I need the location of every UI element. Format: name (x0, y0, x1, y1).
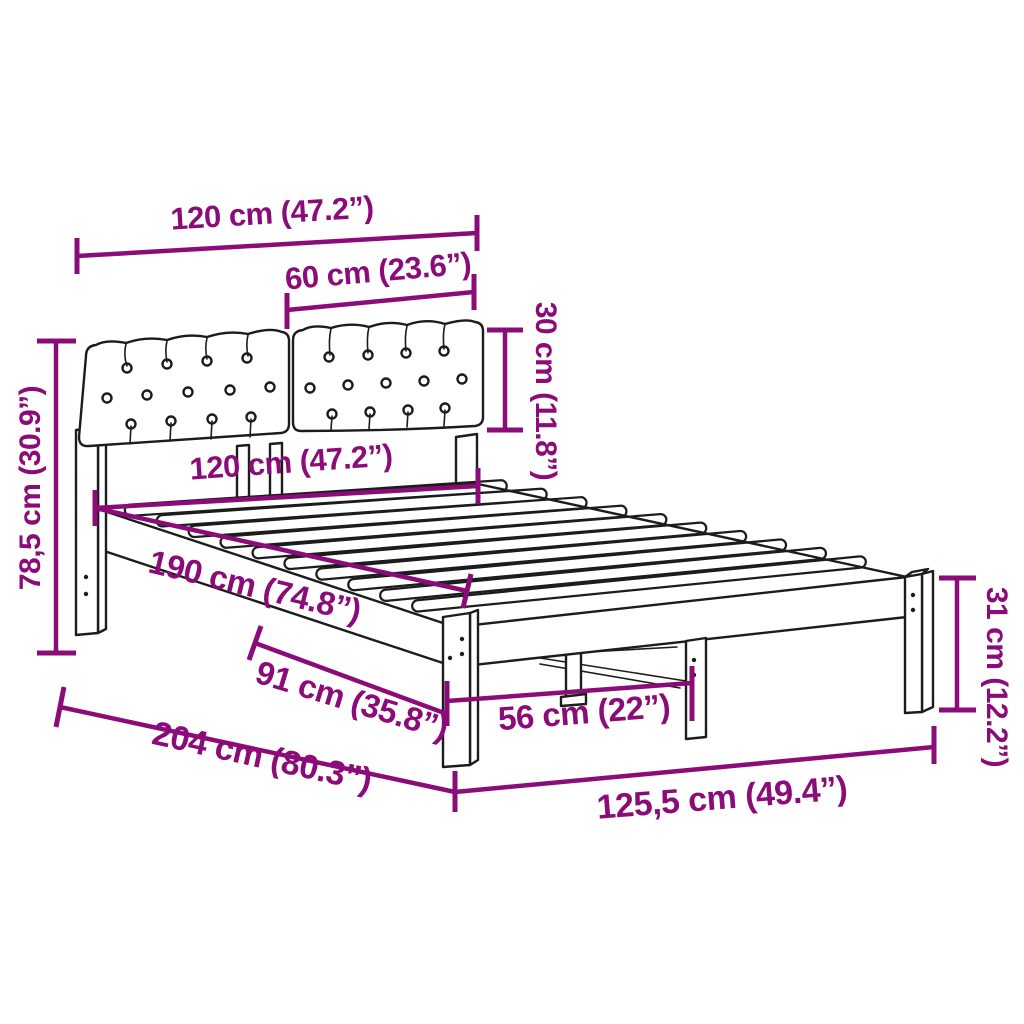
dim-headboard-height-label: 78,5 cm (30.9”) (16, 386, 46, 590)
diagram-canvas (0, 0, 1024, 1024)
headboard-cushion-left (79, 330, 289, 446)
bed-dimension-diagram: 120 cm (47.2”) 60 cm (23.6”) 30 cm (11.8… (0, 0, 1024, 1024)
dim-cushion-height-line (487, 330, 523, 430)
leg-head-left (76, 425, 106, 635)
dim-leg-height-line (939, 578, 976, 710)
headboard-cushion-right (293, 320, 483, 431)
leg-middle (686, 638, 706, 739)
dim-cushion-height-label: 30 cm (11.8”) (530, 302, 560, 481)
leg-foot-right (905, 569, 933, 713)
dim-leg-height-label: 31 cm (12.2”) (981, 587, 1011, 767)
